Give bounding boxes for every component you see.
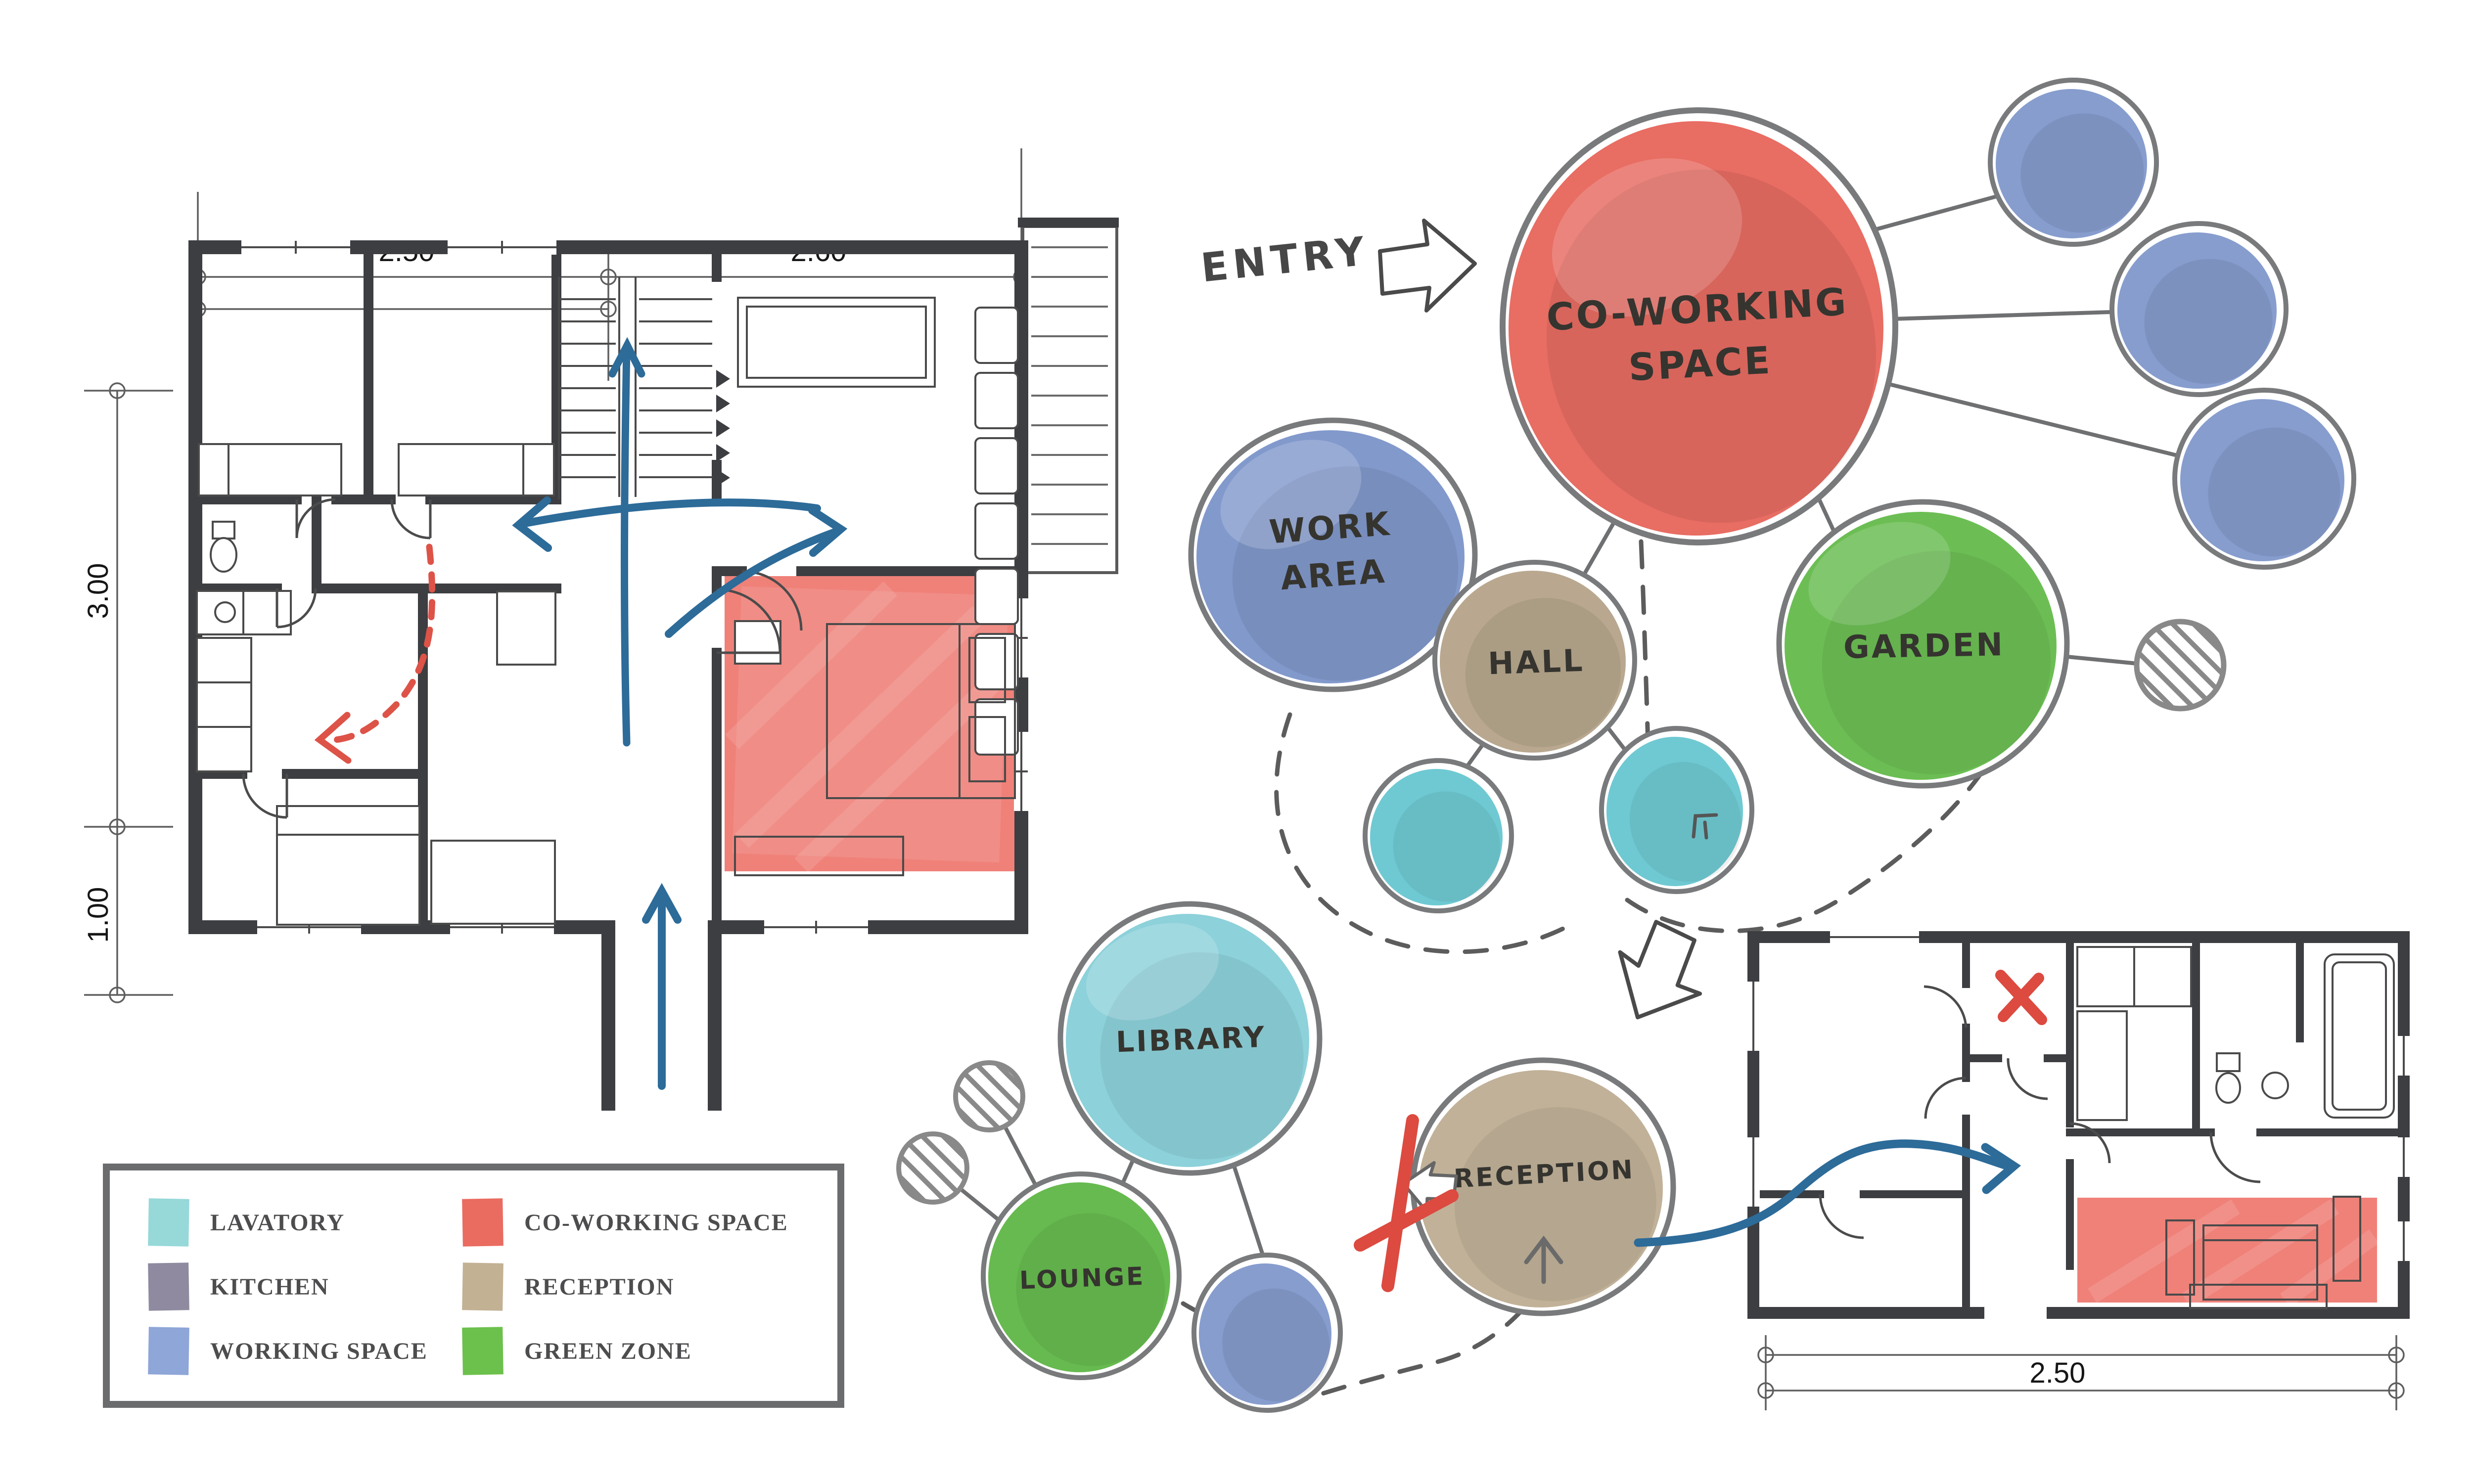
legend-swatch-coworking-space [462,1198,504,1246]
legend-label-green-zone: GREEN ZONE [524,1338,692,1364]
entry-label: ENTRY [1199,228,1372,291]
legend-swatch-kitchen [148,1262,189,1310]
entry-annotation: ENTRY [1199,221,1475,311]
corridor-left-arrow-icon [518,500,817,548]
bubble-working-small-4 [1194,1255,1344,1416]
entry-arrow-icon [1380,221,1475,311]
bubble-coworking: CO-WORKING SPACE [1501,110,1922,566]
small-floor-plan: 2.50 [1638,931,2410,1410]
library-label: LIBRARY [1115,1020,1267,1059]
bubble-lounge: LOUNGE [983,1174,1185,1386]
work-area-label-line2: AREA [1280,552,1388,598]
bubble-garden: GARDEN [1779,502,2082,807]
dim-left-upper: 3.00 [82,563,114,619]
hall-label: HALL [1487,642,1585,682]
hatched-circle-1 [956,1063,1023,1130]
legend-swatch-green-zone [462,1327,504,1375]
hatched-circle-garden [2137,622,2224,709]
small-plan-red-x-icon [2001,975,2042,1020]
stairs [559,277,730,499]
lounge-label: LOUNGE [1019,1262,1145,1295]
legend-label-reception: RECEPTION [524,1274,674,1300]
stairs-up-arrow-icon [612,345,641,743]
bubble-working-small-2 [2112,224,2289,401]
coworking-label-line2: SPACE [1627,338,1773,389]
red-zone-small-plan [2077,1198,2377,1303]
bubble-lavatory-2 [1602,728,1757,897]
hatched-circle-2 [899,1134,967,1202]
legend-swatch-working-space [148,1327,189,1375]
red-dashed-arrow-icon [320,547,432,761]
bubble-library: LIBRARY [1060,904,1332,1188]
dim-small-bottom: 2.50 [2030,1357,2086,1389]
garden-label: GARDEN [1843,627,2005,666]
legend-swatch-reception [462,1262,504,1310]
bubble-lavatory-1 [1365,761,1514,916]
legend-swatch-lavatory [148,1198,189,1246]
bubble-working-small-1 [1990,80,2159,249]
annex-terrace [1018,218,1119,573]
diagram-svg: 2.50 2.60 3.00 1.00 [0,0,2473,1484]
legend-label-coworking-space: CO-WORKING SPACE [524,1210,788,1236]
space-planning-diagram: 2.50 2.60 3.00 1.00 [0,0,2473,1484]
legend: LAVATORY KITCHEN WORKING SPACE CO-WORKIN… [106,1167,841,1404]
legend-label-lavatory: LAVATORY [210,1210,345,1236]
entry-corridor-up-arrow-icon [646,891,678,1086]
bubble-working-small-3 [2175,390,2357,574]
legend-label-working-space: WORKING SPACE [210,1338,428,1364]
legend-label-kitchen: KITCHEN [210,1274,329,1300]
bubble-hall: HALL [1435,562,1641,767]
dim-left-lower: 1.00 [82,887,114,943]
main-floor-plan: 2.50 2.60 3.00 1.00 [82,148,1119,1104]
